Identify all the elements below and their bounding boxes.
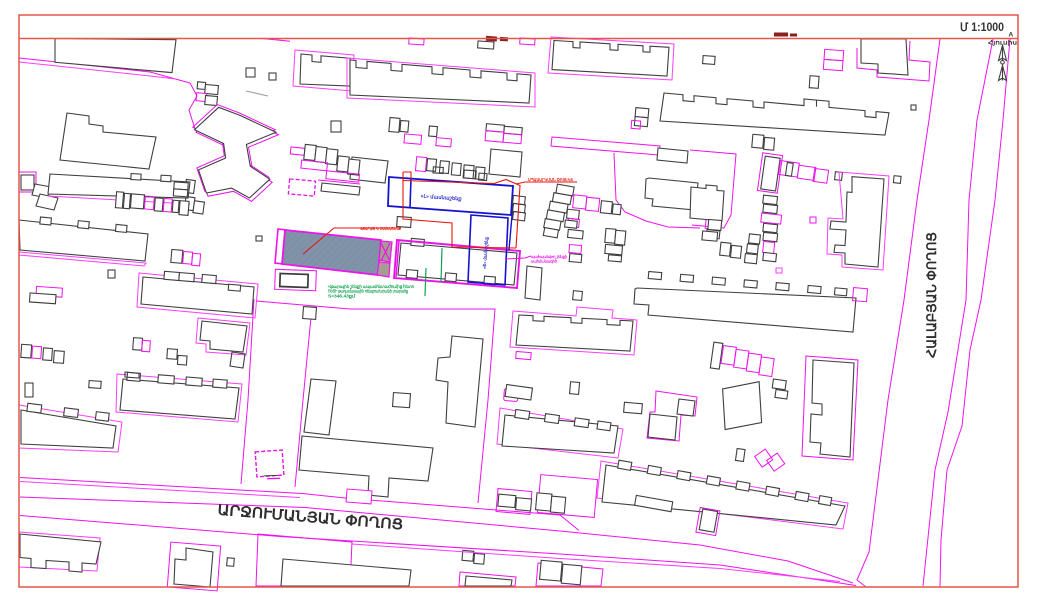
svg-text:ՍՊԱՍԱՐԿՄԱՆ ՕԲՅԵԿՏ: ՍՊԱՍԱՐԿՄԱՆ ՕԲՅԵԿՏ bbox=[528, 177, 573, 182]
svg-text:S=346.43քմ: S=346.43քմ bbox=[328, 293, 355, 298]
svg-text:սահմանագիծ: սահմանագիծ bbox=[531, 259, 558, 264]
svg-text:ՀԱԼԱԲՅԱՆ ՓՈՂՈՑ: ՀԱԼԱԲՅԱՆ ՓՈՂՈՑ bbox=[924, 232, 939, 358]
svg-text:ՎԹԱՐԱՅԻՆ ՄԱՍՆԱՇԵՆՔ: ՎԹԱՐԱՅԻՆ ՄԱՍՆԱՇԵՆՔ bbox=[360, 226, 401, 231]
svg-text:Մ 1:1000: Մ 1:1000 bbox=[960, 22, 1004, 34]
svg-text:պահպանվող շենքի: պահպանվող շենքի bbox=[531, 254, 568, 259]
svg-text:A: A bbox=[1009, 32, 1014, 39]
